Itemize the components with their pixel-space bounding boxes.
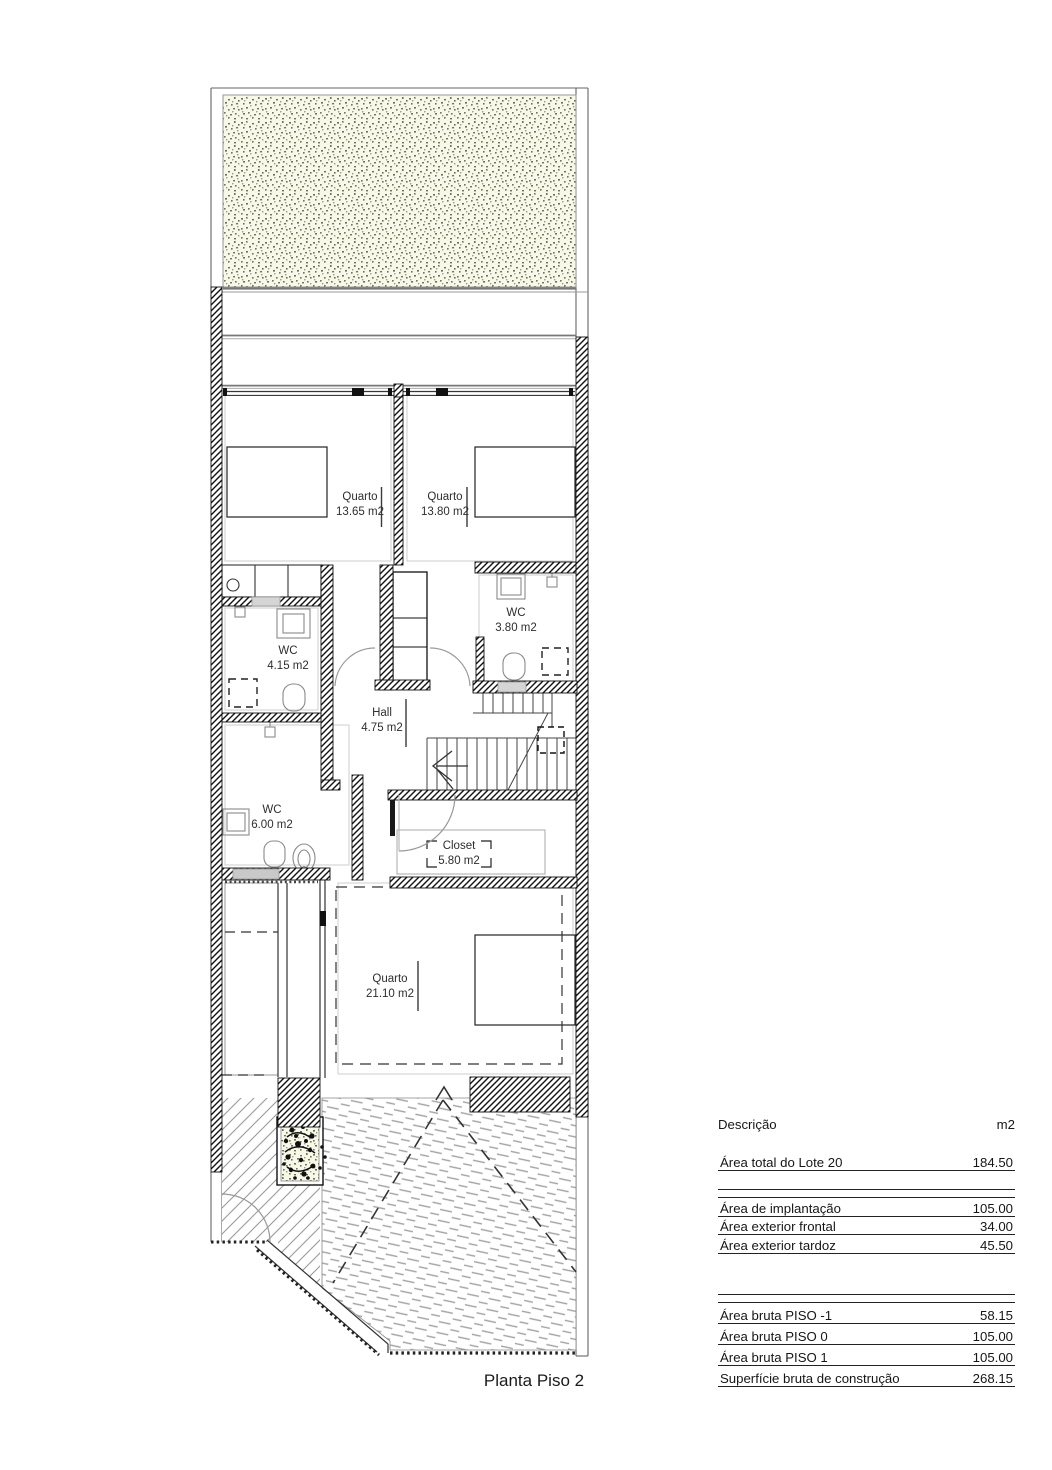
room-area: 4.15 m2 <box>267 659 309 674</box>
row-value: 105.00 <box>973 1350 1015 1365</box>
label-reference-bars <box>382 487 468 1011</box>
room-label-hall: Hall 4.75 m2 <box>361 706 403 736</box>
room-area: 21.10 m2 <box>366 987 414 1002</box>
room-label-wc-1: WC 4.15 m2 <box>267 644 309 674</box>
row-value: 105.00 <box>973 1329 1015 1344</box>
table-row: Área bruta PISO 0 105.00 <box>718 1324 1015 1345</box>
table-row: Área bruta PISO -1 58.15 <box>718 1303 1015 1324</box>
row-value: 268.15 <box>973 1371 1015 1386</box>
room-area: 5.80 m2 <box>438 854 480 869</box>
room-label-quarto-3: Quarto 21.10 m2 <box>366 972 414 1002</box>
group-divider <box>718 1189 1015 1198</box>
table-row: Superfície bruta de construção 268.15 <box>718 1366 1015 1387</box>
room-label-wc-3: WC 6.00 m2 <box>251 803 293 833</box>
row-value: 58.15 <box>980 1308 1015 1323</box>
room-name: Hall <box>361 706 403 721</box>
room-label-wc-2: WC 3.80 m2 <box>495 606 537 636</box>
areas-table-group-1: Área total do Lote 20 184.50 <box>718 1150 1015 1171</box>
room-name: Closet <box>438 839 480 854</box>
row-value: 184.50 <box>973 1155 1015 1170</box>
room-name: Quarto <box>421 490 469 505</box>
table-row: Área exterior tardoz 45.50 <box>718 1235 1015 1254</box>
row-label: Superfície bruta de construção <box>718 1371 900 1386</box>
row-value: 34.00 <box>980 1219 1015 1234</box>
wardrobe-unit <box>222 565 321 597</box>
table-row: Área de implantação 105.00 <box>718 1198 1015 1217</box>
page-title: Planta Piso 2 <box>484 1371 584 1391</box>
room-name: Quarto <box>336 490 384 505</box>
table-header-description: Descrição <box>718 1117 777 1132</box>
room-area: 6.00 m2 <box>251 818 293 833</box>
room-label-closet: Closet 5.80 m2 <box>438 839 480 869</box>
room-name: WC <box>267 644 309 659</box>
table-row: Área total do Lote 20 184.50 <box>718 1150 1015 1171</box>
row-label: Área total do Lote 20 <box>718 1155 842 1170</box>
room-area: 13.80 m2 <box>421 505 469 520</box>
balcony-edge <box>222 336 576 339</box>
areas-table-group-3: Área bruta PISO -1 58.15 Área bruta PISO… <box>718 1294 1015 1387</box>
side-void-strip <box>222 880 326 1078</box>
row-label: Área bruta PISO -1 <box>718 1308 832 1323</box>
room-label-quarto-1: Quarto 13.65 m2 <box>336 490 384 520</box>
row-label: Área exterior tardoz <box>718 1238 836 1253</box>
hall-cabinet <box>393 572 427 685</box>
row-label: Área exterior frontal <box>718 1219 836 1234</box>
room-area: 4.75 m2 <box>361 721 403 736</box>
room-name: WC <box>495 606 537 621</box>
room-name: Quarto <box>366 972 414 987</box>
row-value: 105.00 <box>973 1201 1015 1216</box>
architectural-sheet: Quarto 13.65 m2 Quarto 13.80 m2 WC 4.15 … <box>0 0 1052 1470</box>
row-label: Área bruta PISO 0 <box>718 1329 828 1344</box>
row-value: 45.50 <box>980 1238 1015 1253</box>
row-label: Área de implantação <box>718 1201 841 1216</box>
table-row: Área bruta PISO 1 105.00 <box>718 1345 1015 1366</box>
room-area: 3.80 m2 <box>495 621 537 636</box>
table-header-unit: m2 <box>997 1117 1015 1132</box>
room-label-quarto-2: Quarto 13.80 m2 <box>421 490 469 520</box>
areas-table-group-2: Área de implantação 105.00 Área exterior… <box>718 1189 1015 1254</box>
exterior-lower-area <box>222 1087 576 1350</box>
staircase <box>427 690 576 790</box>
garden-stipple-area <box>211 95 588 292</box>
room-area: 13.65 m2 <box>336 505 384 520</box>
group-divider <box>718 1294 1015 1303</box>
row-label: Área bruta PISO 1 <box>718 1350 828 1365</box>
table-row: Área exterior frontal 34.00 <box>718 1217 1015 1236</box>
room-name: WC <box>251 803 293 818</box>
areas-table-header: Descrição m2 <box>718 1117 1015 1132</box>
